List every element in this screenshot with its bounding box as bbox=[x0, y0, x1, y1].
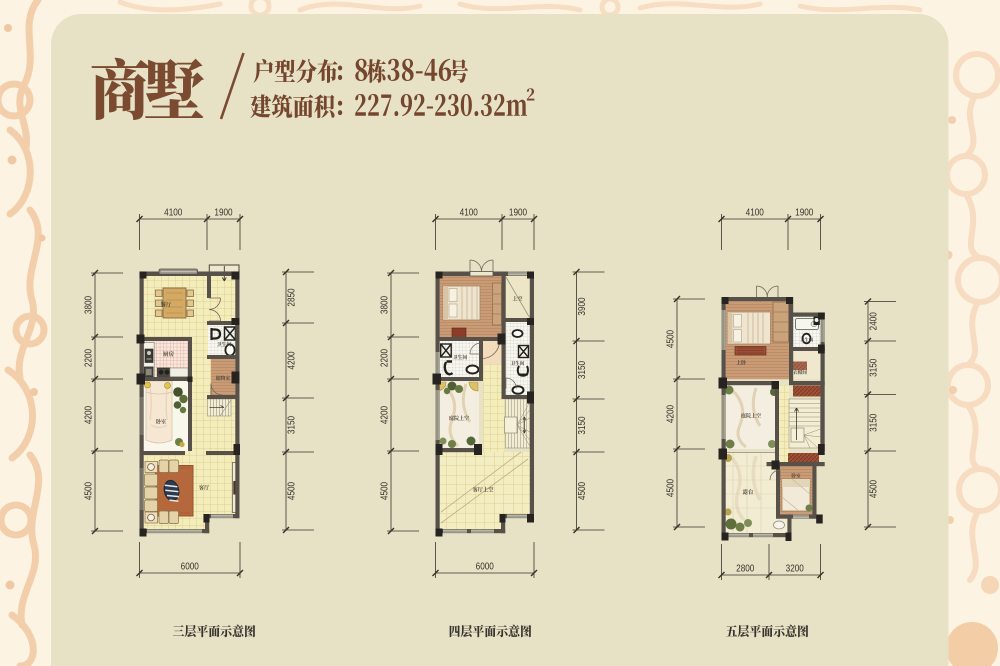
svg-text:3150: 3150 bbox=[287, 416, 298, 434]
svg-text:4500: 4500 bbox=[666, 479, 677, 497]
svg-text:2400: 2400 bbox=[869, 312, 880, 330]
svg-text:4500: 4500 bbox=[666, 330, 677, 348]
svg-text:2200: 2200 bbox=[84, 349, 95, 367]
svg-text:2800: 2800 bbox=[736, 564, 754, 575]
svg-text:1900: 1900 bbox=[795, 208, 813, 219]
svg-text:4100: 4100 bbox=[460, 208, 478, 219]
svg-text:4100: 4100 bbox=[746, 208, 764, 219]
svg-text:1900: 1900 bbox=[509, 208, 527, 219]
svg-text:6000: 6000 bbox=[181, 562, 199, 573]
svg-text:4500: 4500 bbox=[577, 482, 588, 500]
svg-text:6000: 6000 bbox=[476, 562, 494, 573]
svg-text:4500: 4500 bbox=[380, 482, 391, 500]
svg-text:4100: 4100 bbox=[164, 208, 182, 219]
svg-text:3800: 3800 bbox=[84, 296, 95, 314]
svg-text:3800: 3800 bbox=[380, 296, 391, 314]
svg-text:4200: 4200 bbox=[666, 405, 677, 423]
svg-text:3900: 3900 bbox=[577, 297, 588, 315]
svg-text:3150: 3150 bbox=[577, 416, 588, 434]
svg-text:4200: 4200 bbox=[380, 406, 391, 424]
svg-text:2200: 2200 bbox=[380, 349, 391, 367]
svg-text:1900: 1900 bbox=[214, 208, 232, 219]
svg-text:3150: 3150 bbox=[577, 361, 588, 379]
svg-text:3200: 3200 bbox=[786, 564, 804, 575]
svg-text:2850: 2850 bbox=[287, 288, 298, 306]
svg-text:3150: 3150 bbox=[869, 358, 880, 376]
svg-text:4500: 4500 bbox=[287, 482, 298, 500]
svg-text:4500: 4500 bbox=[84, 482, 95, 500]
svg-text:3150: 3150 bbox=[869, 413, 880, 431]
svg-text:4200: 4200 bbox=[287, 351, 298, 369]
svg-text:4500: 4500 bbox=[869, 480, 880, 498]
svg-text:4200: 4200 bbox=[84, 406, 95, 424]
